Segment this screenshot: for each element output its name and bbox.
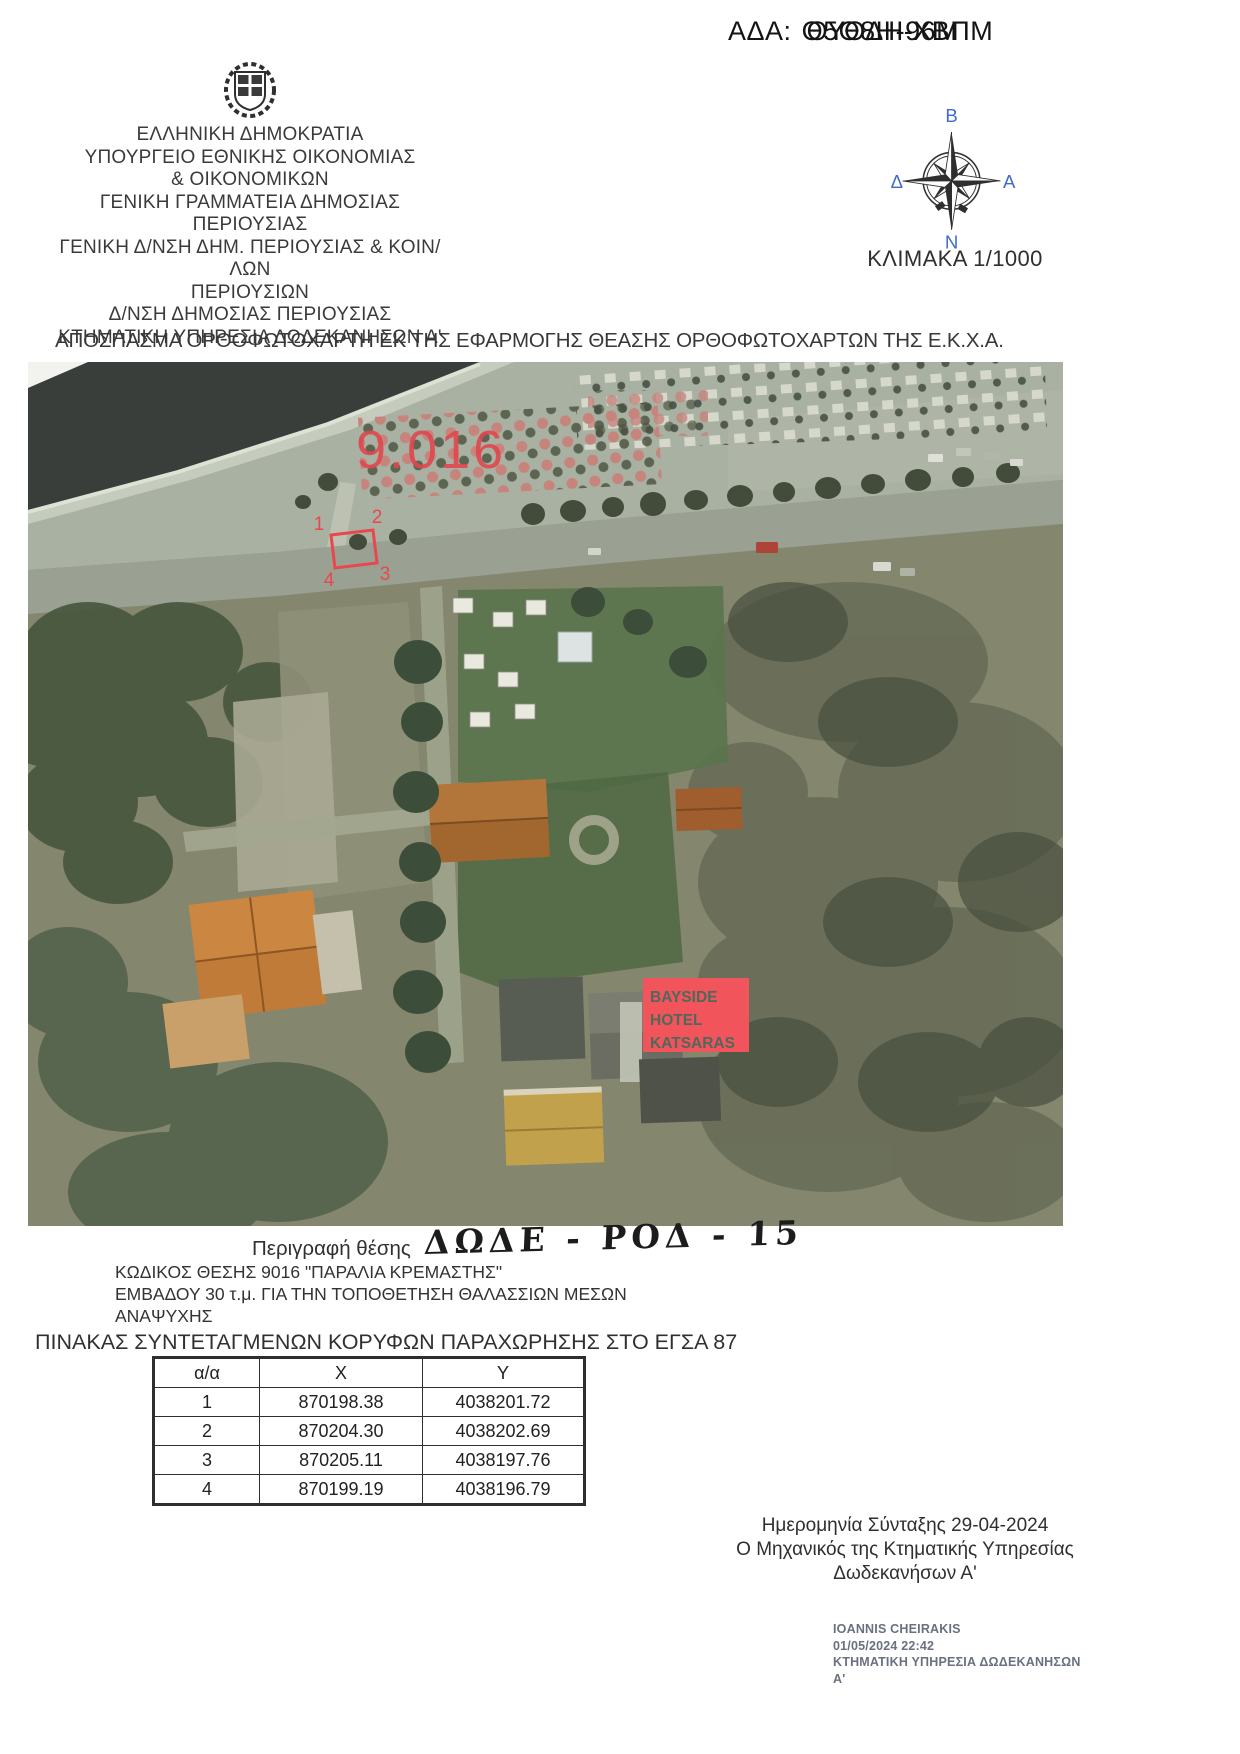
coordinates-table: α/α X Y 1 870198.38 4038201.72 2 870204.… [152,1356,586,1506]
greek-coat-of-arms-icon [222,58,278,118]
signature-name: IOANNIS CHEIRAKIS [833,1621,1081,1638]
cell-index: 4 [154,1475,260,1505]
table-row: 4 870199.19 4038196.79 [154,1475,585,1505]
engineer-title-line2: Δωδεκανήσων Α' [695,1562,1115,1586]
cell-x: 870198.38 [260,1388,423,1417]
location-code-line: ΚΩΔΙΚΟΣ ΘΕΣΗΣ 9016 "ΠΑΡΑΛΙΑ ΚΡΕΜΑΣΤΗΣ" [115,1262,502,1283]
cell-y: 4038197.76 [423,1446,585,1475]
cell-index: 3 [154,1446,260,1475]
hotel-label-line1: BAYSIDE [650,989,717,1006]
hotel-label-line3: KATSARAS [650,1035,735,1052]
hotel-label-box: BAYSIDE HOTEL KATSARAS [643,978,749,1052]
cell-x: 870204.30 [260,1417,423,1446]
beach-zone-code-label: 9.016 [356,420,506,480]
parcel-vertex-2: 2 [372,507,383,528]
orthophoto-map: 9.016 1 2 3 4 BAYSIDE HOTEL KATSARAS [28,362,1063,1226]
col-header-y: Y [423,1358,585,1388]
digital-signature-stamp: IOANNIS CHEIRAKIS 01/05/2024 22:42 ΚΤΗΜΑ… [833,1621,1081,1687]
map-title: ΑΠΟΣΠΑΣΜΑ ΟΡΘΟΦΩΤΟΧΑΡΤΗ ΕΚ ΤΗΣ ΕΦΑΡΜΟΓΗΣ… [55,329,1025,353]
location-area-line2: ΑΝΑΨΥΧΗΣ [115,1306,212,1327]
footer-block: Ημερομηνία Σύνταξης 29-04-2024 Ο Μηχανικ… [695,1514,1115,1586]
orthophoto-graphic: 9.016 1 2 3 4 BAYSIDE HOTEL KATSARAS [28,362,1063,1226]
signature-org-line2: Α' [833,1671,1081,1688]
ada-code-line: ΑΔΑ:Θ5Θ8Η-96ΜΘΥΘΔΗ-ΧΒΠΜ [728,16,959,47]
table-row: 1 870198.38 4038201.72 [154,1388,585,1417]
compass-rose-icon: Β Ν Α Δ [888,102,1020,252]
table-row: 3 870205.11 4038197.76 [154,1446,585,1475]
location-description-label: Περιγραφή θέσης [252,1237,411,1261]
ada-code-layer2: ΘΥΘΔΗ-ΧΒΠΜ [807,16,994,47]
ada-code-overprint: Θ5Θ8Η-96ΜΘΥΘΔΗ-ΧΒΠΜ [802,16,960,47]
composition-date: Ημερομηνία Σύνταξης 29-04-2024 [695,1514,1115,1538]
col-header-index: α/α [154,1358,260,1388]
header-line-directorate: ΓΕΝΙΚΗ Δ/ΝΣΗ ΔΗΜ. ΠΕΡΙΟΥΣΙΑΣ & ΚΟΙΝ/ΛΩΝ [40,237,460,282]
compass-east-label: Α [1003,171,1016,192]
parcel-vertex-1: 1 [314,514,325,535]
cell-x: 870205.11 [260,1446,423,1475]
header-line-ministry2: & ΟΙΚΟΝΟΜΙΚΩΝ [40,169,460,192]
location-area-line1: ΕΜΒΑΔΟΥ 30 τ.μ. ΓΙΑ ΤΗΝ ΤΟΠΟΘΕΤΗΣΗ ΘΑΛΑΣ… [115,1284,627,1305]
header-line-republic: ΕΛΛΗΝΙΚΗ ΔΗΜΟΚΡΑΤΙΑ [40,124,460,147]
hotel-label-line2: HOTEL [650,1012,703,1029]
cell-x: 870199.19 [260,1475,423,1505]
cell-y: 4038196.79 [423,1475,585,1505]
ada-prefix: ΑΔΑ: [728,16,792,46]
compass-north-label: Β [945,105,957,126]
compass-west-label: Δ [891,171,903,192]
cell-y: 4038202.69 [423,1417,585,1446]
table-row: 2 870204.30 4038202.69 [154,1417,585,1446]
map-building-center [428,779,550,863]
coordinates-table-header-row: α/α X Y [154,1358,585,1388]
header-line-ministry: ΥΠΟΥΡΓΕΙΟ ΕΘΝΙΚΗΣ ΟΙΚΟΝΟΜΙΑΣ [40,147,460,170]
government-header: ΕΛΛΗΝΙΚΗ ΔΗΜΟΚΡΑΤΙΑ ΥΠΟΥΡΓΕΙΟ ΕΘΝΙΚΗΣ ΟΙ… [40,58,460,349]
coordinates-table-title: ΠΙΝΑΚΑΣ ΣΥΝΤΕΤΑΓΜΕΝΩΝ ΚΟΡΥΦΩΝ ΠΑΡΑΧΩΡΗΣΗ… [35,1330,737,1355]
map-scale-label: ΚΛΙΜΑΚΑ 1/1000 [860,246,1050,272]
signature-org-line1: ΚΤΗΜΑΤΙΚΗ ΥΠΗΡΕΣΙΑ ΔΩΔΕΚΑΝΗΣΩΝ [833,1654,1081,1671]
col-header-x: X [260,1358,423,1388]
cell-y: 4038201.72 [423,1388,585,1417]
cell-index: 2 [154,1417,260,1446]
header-line-directorate2: ΠΕΡΙΟΥΣΙΩΝ [40,282,460,305]
cell-index: 1 [154,1388,260,1417]
header-line-division: Δ/ΝΣΗ ΔΗΜΟΣΙΑΣ ΠΕΡΙΟΥΣΙΑΣ [40,304,460,327]
header-line-secretariat: ΓΕΝΙΚΗ ΓΡΑΜΜΑΤΕΙΑ ΔΗΜΟΣΙΑΣ ΠΕΡΙΟΥΣΙΑΣ [40,192,460,237]
parcel-vertex-3: 3 [380,564,391,585]
signature-datetime: 01/05/2024 22:42 [833,1638,1081,1655]
document-page: ΑΔΑ:Θ5Θ8Η-96ΜΘΥΘΔΗ-ΧΒΠΜ ΕΛΛΗΝΙΚΗ ΔΗΜΟΚΡΑ… [0,0,1240,1754]
parcel-vertex-4: 4 [324,570,335,591]
engineer-title-line1: Ο Μηχανικός της Κτηματικής Υπηρεσίας [695,1538,1115,1562]
